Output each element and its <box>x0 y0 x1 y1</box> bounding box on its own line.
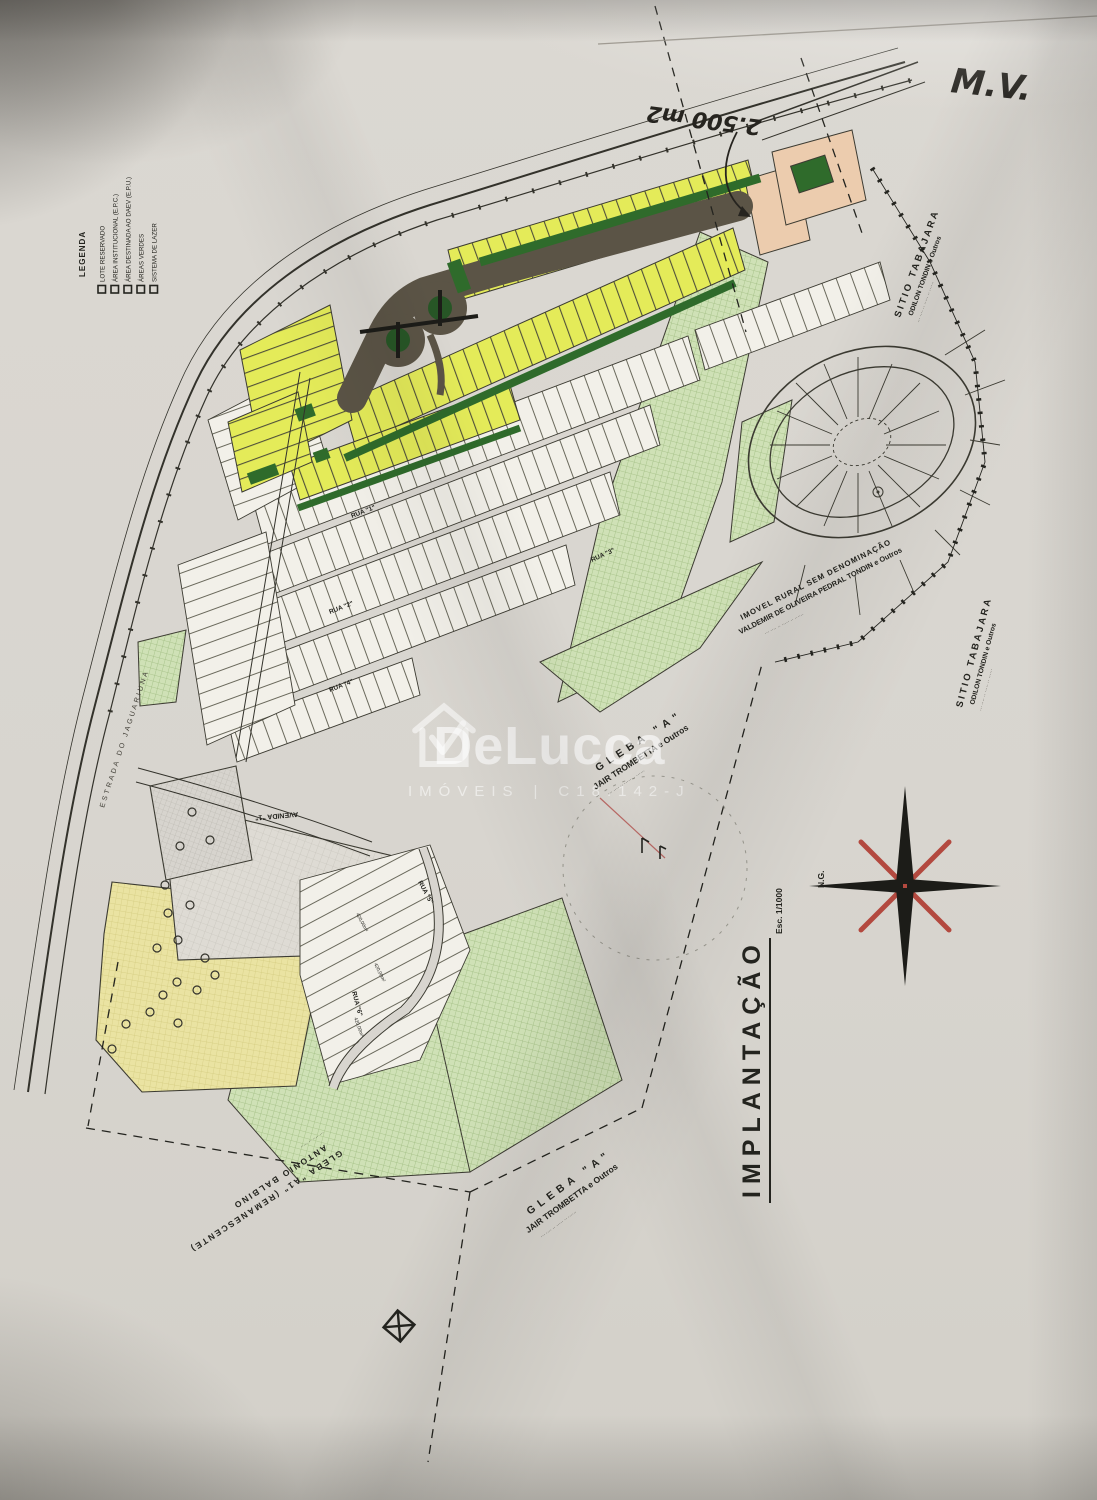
lazer-gray-block <box>150 766 252 880</box>
dashed-survey-circle <box>563 776 747 960</box>
loop-center-island <box>826 409 899 474</box>
neighbor-imovel-line2: VALDEMIR DE OLIVEIRA PEDRAL TONDIN e Out… <box>737 545 903 636</box>
red-survey-line <box>600 798 665 858</box>
legend: LEGENDA LOTE RESERVADO ÁREA INSTITUCIONA… <box>78 177 159 293</box>
legend-item-2: ÁREA DESTINADA AO DAEV (E.P.U.) <box>124 177 133 293</box>
legend-item-label: LOTE RESERVADO <box>100 226 107 282</box>
compass-rose <box>809 786 1001 986</box>
legend-item-label: ÁREAS VERDES <box>139 234 146 282</box>
legend-item-label: SISTEMA DE LAZER <box>152 223 159 282</box>
paper-edge-line <box>598 16 1097 44</box>
road-label-estrada: ESTRADA DO JAGUARIUNA <box>99 669 150 809</box>
legend-title: LEGENDA <box>78 231 87 277</box>
site-plan-drawing: LEGENDA LOTE RESERVADO ÁREA INSTITUCIONA… <box>0 0 1097 1500</box>
handwritten-initials: M.V. <box>949 61 1033 109</box>
street-label-avenida1: AVENIDA "1" <box>255 810 299 821</box>
legend-item-label: ÁREA DESTINADA AO DAEV (E.P.U.) <box>126 177 133 282</box>
photographed-site-plan: LEGENDA LOTE RESERVADO ÁREA INSTITUCIONA… <box>0 0 1097 1500</box>
legend-item-label: ÁREA INSTITUCIONAL (E.P.C.) <box>113 194 120 282</box>
legend-item-4: SISTEMA DE LAZER <box>150 223 159 293</box>
loop-inner-lot-spokes <box>770 357 946 533</box>
neighbor-gleba-remanescente-line1: GLEBA "A1" (REMANESCENTE) <box>188 1148 344 1254</box>
legend-item-3: ÁREAS VERDES <box>137 234 146 293</box>
x-square-marker <box>384 1311 415 1342</box>
green-area-west-small <box>138 630 186 706</box>
legend-item-0: LOTE RESERVADO <box>98 226 107 293</box>
legend-item-1: ÁREA INSTITUCIONAL (E.P.C.) <box>111 194 120 293</box>
survey-point-marker-dot <box>877 491 880 494</box>
scale-label: Esc. 1/1000 <box>774 888 784 934</box>
title-implantacao: IMPLANTAÇÃO <box>736 938 766 1198</box>
north-label: N.G. <box>816 871 826 888</box>
neighbor-imovel-line1: IMOVEL RURAL SEM DENOMINAÇÃO <box>739 537 893 621</box>
